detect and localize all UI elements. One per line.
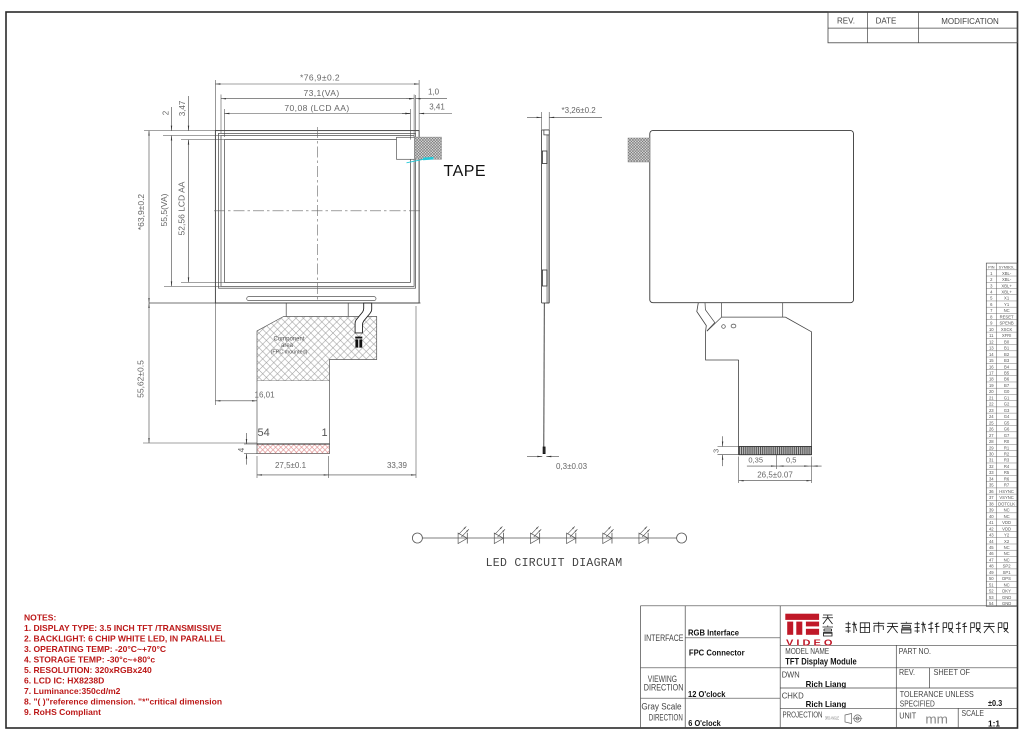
svg-text:NC: NC — [1004, 582, 1010, 587]
svg-text:18: 18 — [989, 377, 994, 382]
svg-text:PART NO.: PART NO. — [899, 646, 931, 656]
svg-text:PROJECTION: PROJECTION — [783, 710, 823, 720]
svg-text:B7: B7 — [1004, 383, 1010, 388]
svg-text:B6: B6 — [1004, 377, 1010, 382]
svg-text:34: 34 — [989, 476, 994, 481]
svg-text:XBL+: XBL+ — [1001, 289, 1012, 294]
svg-text:(FPC mounted): (FPC mounted) — [271, 350, 308, 356]
svg-text:3,47: 3,47 — [178, 100, 187, 116]
svg-text:DIRECTION: DIRECTION — [644, 682, 684, 692]
svg-text:CHKD: CHKD — [782, 690, 804, 700]
svg-text:2. BACKLIGHT: 6 CHIP WHITE LED: 2. BACKLIGHT: 6 CHIP WHITE LED, IN PARAL… — [24, 634, 226, 644]
svg-text:41: 41 — [989, 520, 994, 525]
svg-text:53: 53 — [989, 595, 994, 600]
svg-text:1. DISPLAY TYPE: 3.5 INCH TFT: 1. DISPLAY TYPE: 3.5 INCH TFT /TRANSMISS… — [24, 623, 222, 633]
svg-text:12 O'clock: 12 O'clock — [688, 689, 726, 699]
svg-text:12: 12 — [989, 339, 994, 344]
svg-text:VDD: VDD — [1002, 520, 1011, 525]
svg-text:NOTES:: NOTES: — [24, 613, 56, 623]
svg-text:11: 11 — [989, 333, 994, 338]
svg-text:0,5: 0,5 — [786, 456, 796, 465]
svg-text:XFRI: XFRI — [1002, 333, 1012, 338]
svg-text:NC: NC — [1004, 514, 1010, 519]
svg-text:0,35: 0,35 — [748, 456, 763, 465]
svg-text:1: 1 — [322, 427, 328, 439]
svg-text:R4: R4 — [1004, 464, 1010, 469]
svg-text:TAPE: TAPE — [444, 163, 487, 180]
svg-text:0,3±0.03: 0,3±0.03 — [556, 462, 588, 471]
svg-text:24: 24 — [989, 414, 994, 419]
svg-text:54: 54 — [989, 601, 994, 606]
svg-text:SPECIFIED: SPECIFIED — [900, 699, 935, 709]
svg-text:8. "( )"reference dimension. ": 8. "( )"reference dimension. "*"critical… — [24, 697, 222, 707]
svg-text:48: 48 — [989, 564, 994, 569]
svg-text:SP2: SP2 — [1003, 564, 1012, 569]
svg-text:GND: GND — [1002, 601, 1011, 606]
svg-text:DOTCLK: DOTCLK — [998, 501, 1015, 506]
svg-text:R1: R1 — [1004, 445, 1010, 450]
svg-text:VSYNC: VSYNC — [999, 495, 1013, 500]
svg-text:TOLERANCE UNLESS: TOLERANCE UNLESS — [900, 689, 974, 699]
svg-text:MODIFICATION: MODIFICATION — [941, 17, 999, 26]
svg-text:R7: R7 — [1004, 483, 1010, 488]
svg-text:52,56 LCD AA: 52,56 LCD AA — [177, 181, 187, 235]
svg-text:40: 40 — [989, 514, 994, 519]
svg-text:REV.: REV. — [837, 17, 855, 26]
svg-text:MODEL NAME: MODEL NAME — [785, 646, 829, 656]
svg-text:3: 3 — [712, 449, 721, 453]
svg-text:G1: G1 — [1004, 395, 1010, 400]
svg-text:Gray Scale: Gray Scale — [641, 702, 681, 712]
svg-text:26,5±0.07: 26,5±0.07 — [757, 471, 793, 480]
svg-text:G5: G5 — [1004, 420, 1010, 425]
svg-text:52: 52 — [989, 589, 994, 594]
svg-text:2: 2 — [161, 110, 170, 115]
svg-text:G7: G7 — [1004, 433, 1010, 438]
svg-text:VDD: VDD — [1002, 526, 1011, 531]
svg-text:23: 23 — [989, 408, 994, 413]
svg-text:B5: B5 — [1004, 371, 1010, 376]
svg-text:XSCK: XSCK — [1001, 327, 1013, 332]
svg-text:4: 4 — [237, 447, 246, 452]
svg-text:NC: NC — [1004, 508, 1010, 513]
svg-text:25: 25 — [989, 420, 994, 425]
svg-text:43: 43 — [989, 533, 994, 538]
svg-text:55,62±0.5: 55,62±0.5 — [136, 360, 146, 398]
svg-text:73,1(VA): 73,1(VA) — [303, 88, 339, 98]
svg-text:NC: NC — [1004, 545, 1010, 550]
svg-text:R3: R3 — [1004, 458, 1010, 463]
svg-text:Rich Liang: Rich Liang — [806, 699, 847, 709]
svg-text:XBL-: XBL- — [1002, 277, 1012, 282]
svg-text:XBL-: XBL- — [1002, 271, 1012, 276]
svg-text:DWN: DWN — [782, 669, 800, 679]
svg-text:REV.: REV. — [899, 667, 915, 677]
svg-text:5. RESOLUTION: 320xRGBx240: 5. RESOLUTION: 320xRGBx240 — [24, 665, 152, 675]
svg-text:32: 32 — [989, 464, 994, 469]
svg-text:55,5(VA): 55,5(VA) — [159, 193, 169, 226]
svg-text:Component: Component — [273, 337, 304, 343]
svg-text:B2: B2 — [1004, 352, 1010, 357]
svg-text:*63,9±0.2: *63,9±0.2 — [136, 194, 146, 231]
svg-text:10: 10 — [989, 327, 994, 332]
svg-text:26: 26 — [989, 427, 994, 432]
svg-text:INTERFACE: INTERFACE — [644, 633, 683, 643]
svg-text:19: 19 — [989, 383, 994, 388]
svg-text:G6: G6 — [1004, 427, 1010, 432]
svg-text:17: 17 — [989, 371, 994, 376]
svg-text:70,08 (LCD AA): 70,08 (LCD AA) — [284, 103, 349, 113]
svg-text:SHEET OF: SHEET OF — [934, 667, 971, 677]
svg-text:X1: X1 — [1004, 296, 1010, 301]
svg-text:39: 39 — [989, 508, 994, 513]
svg-text:FPC Connector: FPC Connector — [689, 648, 745, 658]
svg-text:RESET: RESET — [1000, 314, 1014, 319]
svg-text:50: 50 — [989, 576, 994, 581]
svg-text:mm: mm — [925, 712, 948, 727]
svg-text:44: 44 — [989, 539, 994, 544]
svg-text:6. LCD IC: HX8238D: 6. LCD IC: HX8238D — [24, 676, 104, 686]
svg-text:30: 30 — [989, 452, 994, 457]
svg-text:RGB Interface: RGB Interface — [688, 628, 739, 638]
svg-text:28: 28 — [989, 439, 994, 444]
svg-text:37: 37 — [989, 495, 994, 500]
svg-text:DATE: DATE — [876, 17, 897, 26]
svg-text:35: 35 — [989, 483, 994, 488]
svg-text:27,5±0.1: 27,5±0.1 — [275, 461, 307, 470]
svg-text:31: 31 — [989, 458, 994, 463]
svg-text:33,39: 33,39 — [387, 461, 408, 470]
svg-text:13: 13 — [989, 346, 994, 351]
svg-text:42: 42 — [989, 526, 994, 531]
svg-text:XBL+: XBL+ — [1001, 283, 1012, 288]
svg-text:Y1: Y1 — [1004, 302, 1010, 307]
svg-text:49: 49 — [989, 570, 994, 575]
svg-text:B4: B4 — [1004, 364, 1010, 369]
svg-text:9. RoHS Compliant: 9. RoHS Compliant — [24, 707, 101, 717]
svg-text:SCALE: SCALE — [962, 708, 985, 718]
svg-text:4. STORAGE TEMP: -30°c~+80°c: 4. STORAGE TEMP: -30°c~+80°c — [24, 655, 155, 665]
svg-text:Y2: Y2 — [1004, 533, 1010, 538]
svg-text:R6: R6 — [1004, 476, 1010, 481]
svg-text:G4: G4 — [1004, 414, 1010, 419]
svg-text:X2: X2 — [1004, 539, 1010, 544]
svg-text:R5: R5 — [1004, 470, 1010, 475]
svg-text:3. OPERATING TEMP: -20°C~+70°C: 3. OPERATING TEMP: -20°C~+70°C — [24, 644, 166, 654]
svg-text:1:1: 1:1 — [988, 719, 1000, 729]
svg-text:GND: GND — [1002, 595, 1011, 600]
svg-text:29: 29 — [989, 445, 994, 450]
svg-text:1,0: 1,0 — [428, 88, 440, 97]
svg-text:G3: G3 — [1004, 408, 1010, 413]
svg-text:20: 20 — [989, 389, 994, 394]
svg-text:DKY: DKY — [1002, 589, 1011, 594]
svg-text:SP1: SP1 — [1003, 570, 1012, 575]
svg-text:22: 22 — [989, 402, 994, 407]
svg-text:UNIT: UNIT — [899, 710, 916, 720]
svg-text:NC: NC — [1004, 308, 1010, 313]
svg-text:3RD ANGLE: 3RD ANGLE — [825, 716, 839, 721]
svg-text:*3,26±0.2: *3,26±0.2 — [562, 106, 597, 115]
svg-text:47: 47 — [989, 557, 994, 562]
svg-text:DIRECTION: DIRECTION — [649, 713, 683, 723]
svg-text:6 O'clock: 6 O'clock — [688, 718, 721, 728]
svg-text:area: area — [281, 343, 294, 349]
svg-text:R0: R0 — [1004, 439, 1010, 444]
svg-text:51: 51 — [989, 582, 994, 587]
svg-text:G2: G2 — [1004, 402, 1010, 407]
svg-text:HSYNC: HSYNC — [999, 489, 1014, 494]
svg-text:LED CIRCUIT DIAGRAM: LED CIRCUIT DIAGRAM — [486, 557, 623, 570]
svg-text:SYMBOL: SYMBOL — [999, 265, 1015, 269]
svg-text:54: 54 — [258, 427, 270, 439]
svg-text:7. Luminance:350cd/m2: 7. Luminance:350cd/m2 — [24, 686, 121, 696]
svg-text:3,41: 3,41 — [429, 103, 445, 112]
svg-text:B0: B0 — [1004, 339, 1010, 344]
svg-text:G0: G0 — [1004, 389, 1010, 394]
svg-text:45: 45 — [989, 545, 994, 550]
svg-text:R2: R2 — [1004, 452, 1010, 457]
svg-text:16,01: 16,01 — [255, 391, 276, 400]
svg-text:21: 21 — [989, 395, 994, 400]
svg-text:NC: NC — [1004, 551, 1010, 556]
svg-text:27: 27 — [989, 433, 994, 438]
svg-text:15: 15 — [989, 358, 994, 363]
svg-text:Rich Liang: Rich Liang — [806, 679, 847, 689]
svg-text:B3: B3 — [1004, 358, 1010, 363]
svg-text:36: 36 — [989, 489, 994, 494]
svg-text:DPS: DPS — [1002, 576, 1011, 581]
svg-text:14: 14 — [989, 352, 994, 357]
svg-text:TFT Display Module: TFT Display Module — [785, 656, 856, 666]
svg-text:PIN: PIN — [988, 265, 995, 269]
svg-text:38: 38 — [989, 501, 994, 506]
svg-text:46: 46 — [989, 551, 994, 556]
svg-text:±0.3: ±0.3 — [988, 698, 1002, 708]
svg-text:B1: B1 — [1004, 346, 1010, 351]
svg-text:SPENB: SPENB — [999, 321, 1013, 326]
svg-text:33: 33 — [989, 470, 994, 475]
svg-text:16: 16 — [989, 364, 994, 369]
svg-text:*76,9±0.2: *76,9±0.2 — [300, 73, 340, 83]
svg-text:NC: NC — [1004, 557, 1010, 562]
